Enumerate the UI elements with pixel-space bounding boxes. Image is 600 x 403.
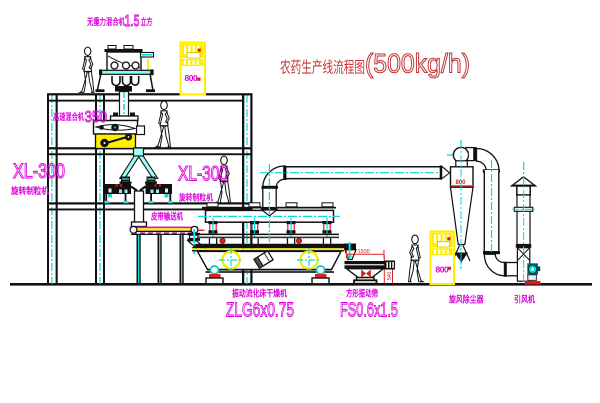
- svg-text:旋转制粒机: 旋转制粒机: [178, 193, 213, 203]
- svg-text:350: 350: [85, 109, 108, 126]
- svg-text:ZLG6x0.75: ZLG6x0.75: [226, 300, 294, 322]
- svg-text:旋转制粒机: 旋转制粒机: [10, 185, 49, 196]
- svg-text:立方: 立方: [141, 16, 153, 27]
- svg-text:800: 800: [436, 265, 449, 275]
- svg-text:1500: 1500: [358, 249, 370, 255]
- svg-text:旋风除尘器: 旋风除尘器: [448, 294, 484, 305]
- svg-text:XL-300: XL-300: [13, 159, 65, 183]
- svg-text:高速混合机: 高速混合机: [53, 111, 84, 122]
- svg-text:XL-300: XL-300: [178, 163, 228, 186]
- svg-text:方形振动筛: 方形振动筛: [346, 288, 378, 299]
- svg-text:农药生产线流程图: 农药生产线流程图: [280, 59, 365, 77]
- svg-text:800: 800: [185, 73, 198, 83]
- svg-text:(500kg/h): (500kg/h): [365, 49, 470, 79]
- svg-text:540: 540: [387, 271, 393, 280]
- svg-text:皮带输送机: 皮带输送机: [150, 211, 183, 222]
- svg-text:振动流化床干燥机: 振动流化床干燥机: [232, 288, 287, 299]
- svg-text:1.5: 1.5: [125, 13, 140, 30]
- svg-text:FS0.6x1.5: FS0.6x1.5: [340, 300, 398, 322]
- svg-text:引风机: 引风机: [514, 294, 535, 305]
- svg-text:无重力混合机: 无重力混合机: [86, 16, 125, 27]
